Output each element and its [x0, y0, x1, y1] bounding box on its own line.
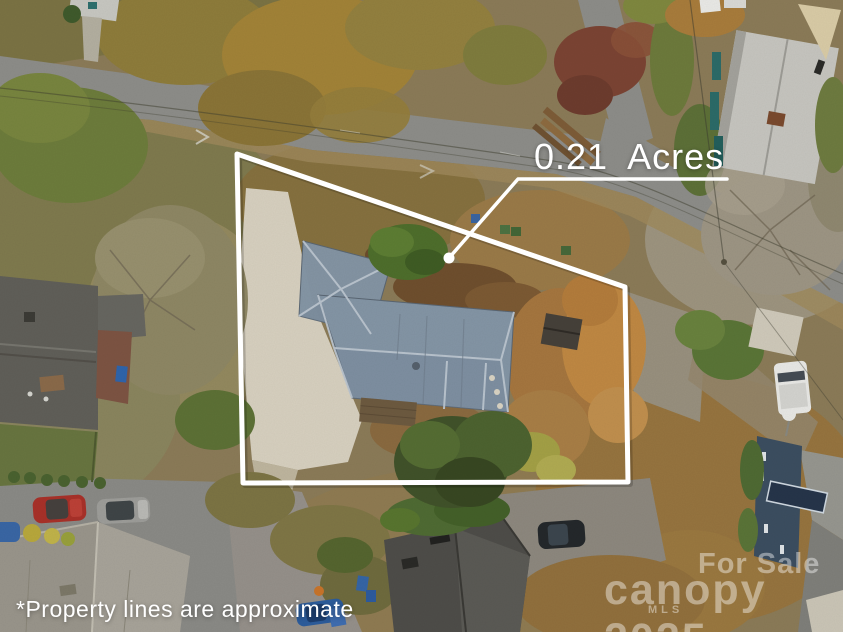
aerial-scene — [0, 0, 843, 632]
watermark-brand: canopy — [604, 566, 767, 614]
watermark-brand-year: canopy 2025 — [604, 566, 843, 632]
disclaimer-label: *Property lines are approximate — [16, 596, 354, 623]
acreage-label: 0.21 Acres — [534, 136, 724, 178]
watermark-year: 2025 — [604, 615, 708, 632]
aerial-property-photo: 0.21 Acres *Property lines are approxima… — [0, 0, 843, 632]
watermark-mls: MLS — [648, 604, 683, 616]
acreage-marker-dot — [444, 253, 455, 264]
film-grain — [0, 0, 843, 632]
